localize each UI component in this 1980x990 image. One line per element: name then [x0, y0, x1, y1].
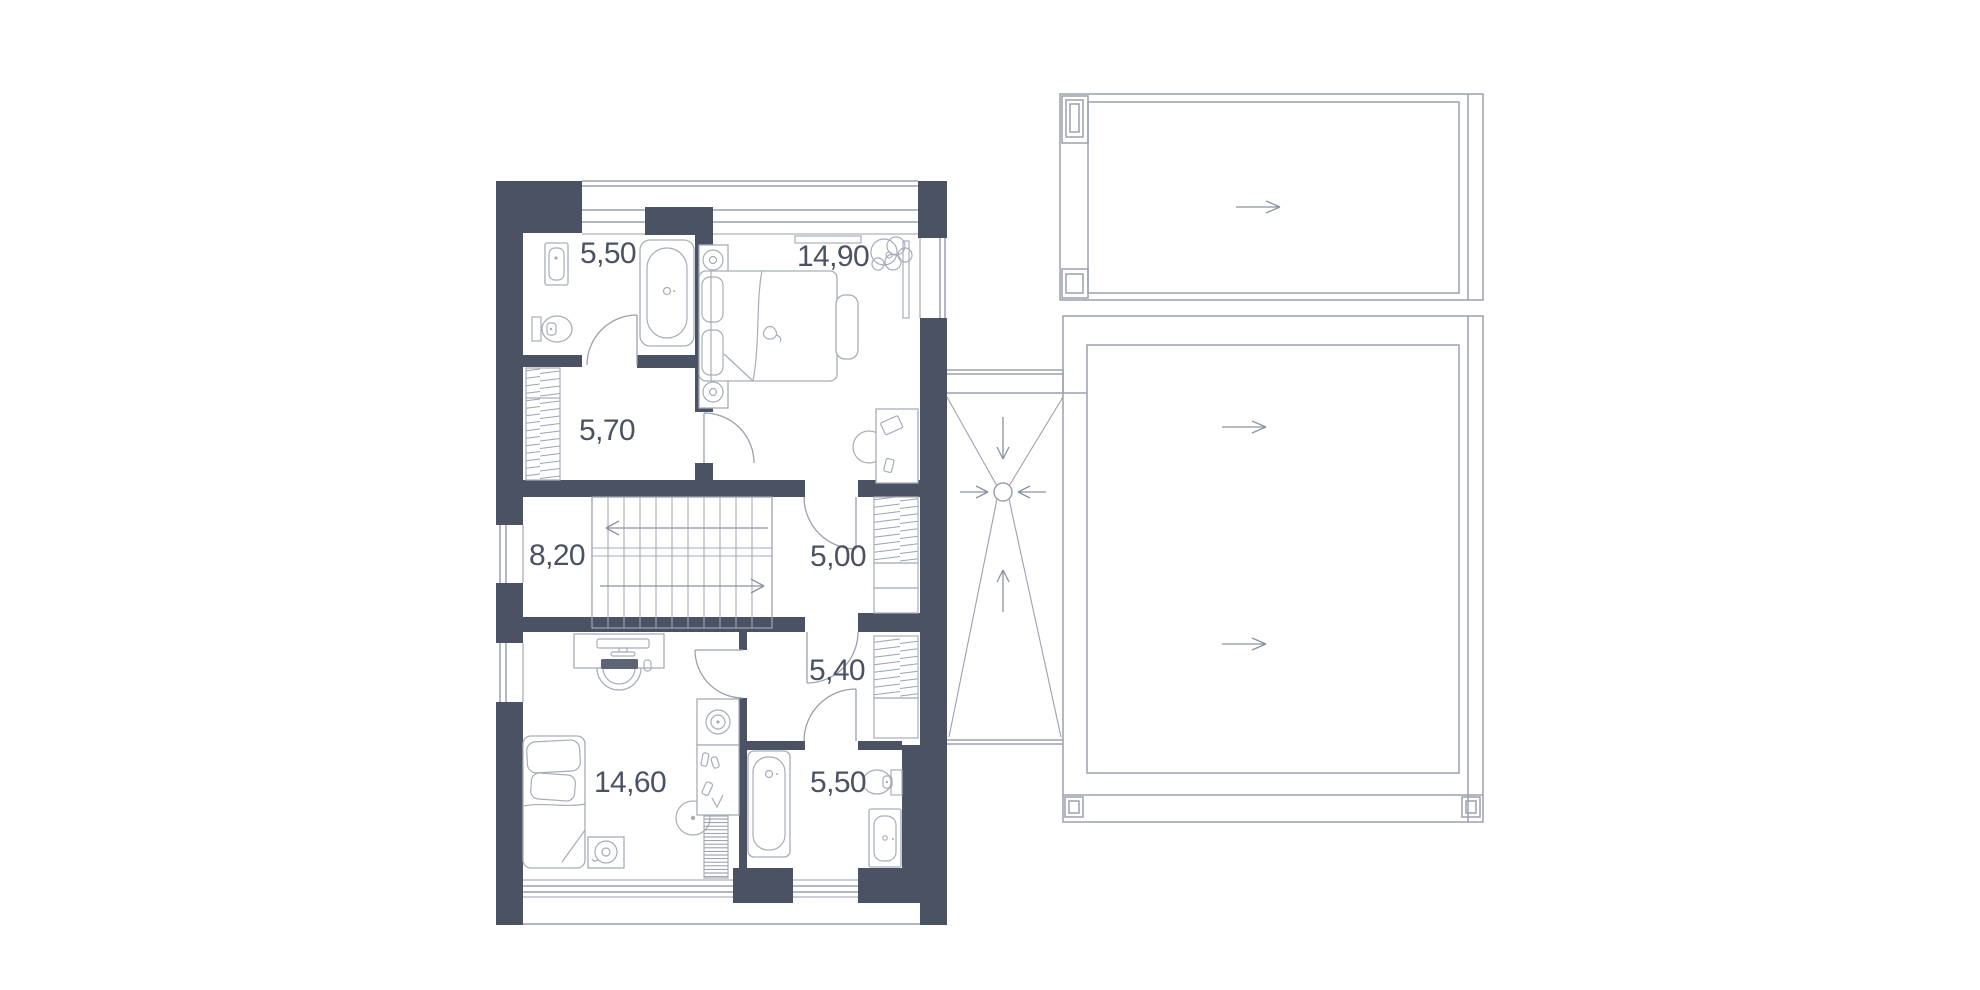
door-arc	[804, 689, 856, 741]
chimney-icon	[1062, 269, 1088, 298]
wall	[920, 318, 947, 925]
stairs-down-arrow-icon	[600, 579, 764, 593]
hall-wardrobe-icon	[526, 368, 560, 480]
bathtub-icon	[748, 751, 790, 857]
slope-arrow-icon	[997, 570, 1009, 612]
wall	[637, 355, 695, 368]
washing-machine-icon	[697, 699, 739, 745]
desk-icon	[853, 409, 918, 483]
bed-icon	[523, 736, 585, 868]
roof-upper-outline	[1060, 94, 1483, 300]
roof-valley-connector	[947, 370, 1087, 744]
wall	[858, 741, 902, 750]
slope-arrow-icon	[1236, 201, 1280, 213]
wall	[496, 480, 805, 497]
slope-arrow-icon	[1222, 638, 1266, 650]
toilet-icon	[532, 316, 572, 342]
door-arc	[587, 315, 637, 365]
stairs	[592, 497, 772, 628]
bench-icon	[836, 295, 858, 359]
room-area-label: 14,60	[594, 766, 666, 799]
door-arc	[695, 650, 743, 698]
bathtub-icon	[640, 240, 694, 346]
chair-icon	[603, 668, 635, 684]
room-area-label: 5,70	[579, 414, 635, 447]
stairs-up-arrow-icon	[606, 521, 768, 535]
wall	[496, 583, 523, 643]
drying-rack-icon	[704, 816, 728, 878]
slope-arrow-icon	[997, 417, 1009, 459]
wall	[747, 741, 805, 750]
wall	[496, 181, 523, 525]
wall	[645, 207, 713, 235]
room-area-label: 5,50	[810, 766, 866, 799]
wall	[858, 613, 920, 632]
plant-icon	[871, 237, 912, 270]
wall	[496, 617, 805, 632]
floor-plan: 5,50 14,90 5,70 8,20 5,00 5,40 14,60 5,5…	[0, 0, 1980, 990]
chimney-icon	[1062, 96, 1088, 143]
sink-icon	[545, 243, 568, 285]
curtain-icon	[903, 241, 909, 318]
room-area-label: 5,00	[810, 540, 866, 573]
closet-wardrobe-icon	[874, 636, 918, 738]
bedroom-top-furniture	[699, 236, 918, 483]
bed-icon	[699, 271, 837, 381]
stairs-outline	[592, 497, 772, 628]
room-area-label: 5,50	[580, 237, 636, 270]
slope-arrow-icon	[1222, 421, 1266, 433]
wall	[739, 632, 747, 650]
drain-icon	[994, 483, 1012, 501]
stairs-treads	[592, 497, 772, 628]
floor-plan-page: 5,50 14,90 5,70 8,20 5,00 5,40 14,60 5,5…	[0, 0, 1980, 990]
wall	[523, 355, 582, 367]
roof-lower-outline	[1063, 316, 1483, 822]
wall	[739, 698, 747, 880]
slope-arrow-icon	[960, 486, 988, 498]
room-area-label: 8,20	[529, 539, 585, 572]
toilet-icon	[863, 770, 902, 795]
nightstand-icon	[588, 837, 624, 868]
chimney-icon	[1065, 797, 1083, 817]
roof-terrace	[947, 94, 1483, 822]
sink-icon	[869, 809, 901, 867]
chimney-icon	[1462, 797, 1480, 817]
laundry-shelf-icon	[697, 745, 739, 815]
bedroom-bottom-furniture	[523, 634, 739, 878]
wall	[918, 181, 947, 238]
room-area-label: 5,40	[809, 654, 865, 687]
keyboard-icon	[601, 659, 638, 669]
door-arc	[704, 413, 754, 463]
roof-slope-lines	[947, 397, 1063, 737]
wall	[496, 702, 523, 925]
corridor-wardrobe-icon	[874, 497, 918, 613]
slope-arrow-icon	[1018, 486, 1046, 498]
room-area-label: 14,90	[797, 240, 869, 273]
wall	[902, 745, 923, 880]
computer-desk-icon	[574, 634, 664, 690]
